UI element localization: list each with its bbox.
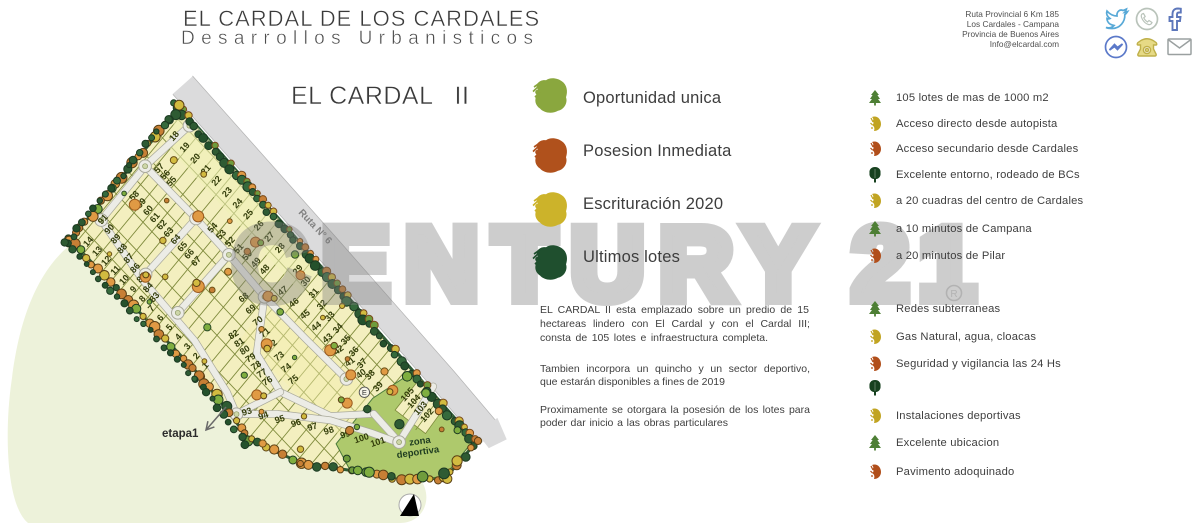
- svg-text:Excelente entorno, rodeado de: Excelente entorno, rodeado de BCs: [896, 169, 1080, 181]
- svg-text:a 20 cuadras del centro de Car: a 20 cuadras del centro de Cardales: [896, 195, 1084, 207]
- svg-text:Seguridad y vigilancia las 24: Seguridad y vigilancia las 24 Hs: [896, 358, 1061, 370]
- svg-text:a 20 minutos de Pilar: a 20 minutos de Pilar: [896, 250, 1005, 262]
- svg-text:105 lotes de mas de 1000 m2: 105 lotes de mas de 1000 m2: [896, 92, 1049, 104]
- svg-text:Acceso directo desde autopista: Acceso directo desde autopista: [896, 118, 1058, 130]
- svg-text:a 10 minutos de Campana: a 10 minutos de Campana: [896, 223, 1032, 235]
- svg-text:Gas Natural, agua, cloacas: Gas Natural, agua, cloacas: [896, 331, 1036, 343]
- svg-text:Redes subterraneas: Redes subterraneas: [896, 303, 1001, 315]
- svg-text:Excelente ubicacion: Excelente ubicacion: [896, 437, 999, 449]
- svg-text:Instalaciones deportivas: Instalaciones deportivas: [896, 410, 1021, 422]
- svg-text:Acceso secundario desde Cardal: Acceso secundario desde Cardales: [896, 143, 1079, 155]
- svg-text:Pavimento adoquinado: Pavimento adoquinado: [896, 466, 1014, 478]
